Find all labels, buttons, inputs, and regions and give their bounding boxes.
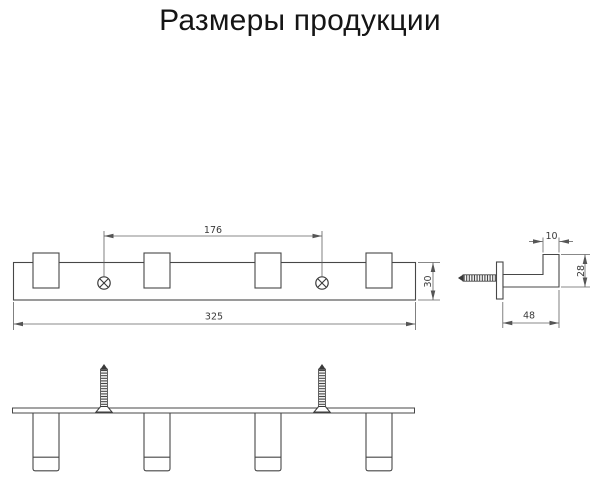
dimension-hook-height: 28 <box>561 255 590 288</box>
hook-bottom <box>255 413 281 471</box>
hook-bottom <box>144 413 170 471</box>
screw-vertical-icon <box>96 365 112 413</box>
screw-vertical-icon <box>314 365 330 413</box>
dimension-hook-depth: 48 <box>503 290 559 328</box>
hook-bottom <box>33 413 59 471</box>
dimension-total-length: 325 <box>14 302 416 330</box>
hook-front <box>144 253 170 288</box>
screw-head-icon <box>98 277 110 289</box>
rail-outline <box>14 263 416 301</box>
dimension-label: 176 <box>204 225 222 236</box>
hook-front <box>255 253 281 288</box>
bottom-view <box>13 365 415 471</box>
screw-head-icon <box>316 277 328 289</box>
screw-side-icon <box>459 275 497 281</box>
hook-bottom <box>366 413 392 471</box>
side-view: 10 28 48 <box>459 231 591 328</box>
front-view: 176 325 30 <box>14 225 441 330</box>
technical-drawing: 176 325 30 10 <box>0 0 600 480</box>
dimension-label: 28 <box>576 265 587 277</box>
dimension-label: 48 <box>523 311 535 322</box>
hook-front <box>366 253 392 288</box>
dimension-label: 30 <box>423 275 434 287</box>
dimension-label: 10 <box>545 231 557 242</box>
rail-bottom-outline <box>13 408 415 413</box>
hook-front <box>33 253 59 288</box>
hook-profile <box>503 255 559 288</box>
rail-edge-outline <box>497 262 504 299</box>
dimension-rail-height: 30 <box>418 263 440 301</box>
dimension-tip-width: 10 <box>529 231 573 253</box>
dimension-label: 325 <box>205 312 223 323</box>
